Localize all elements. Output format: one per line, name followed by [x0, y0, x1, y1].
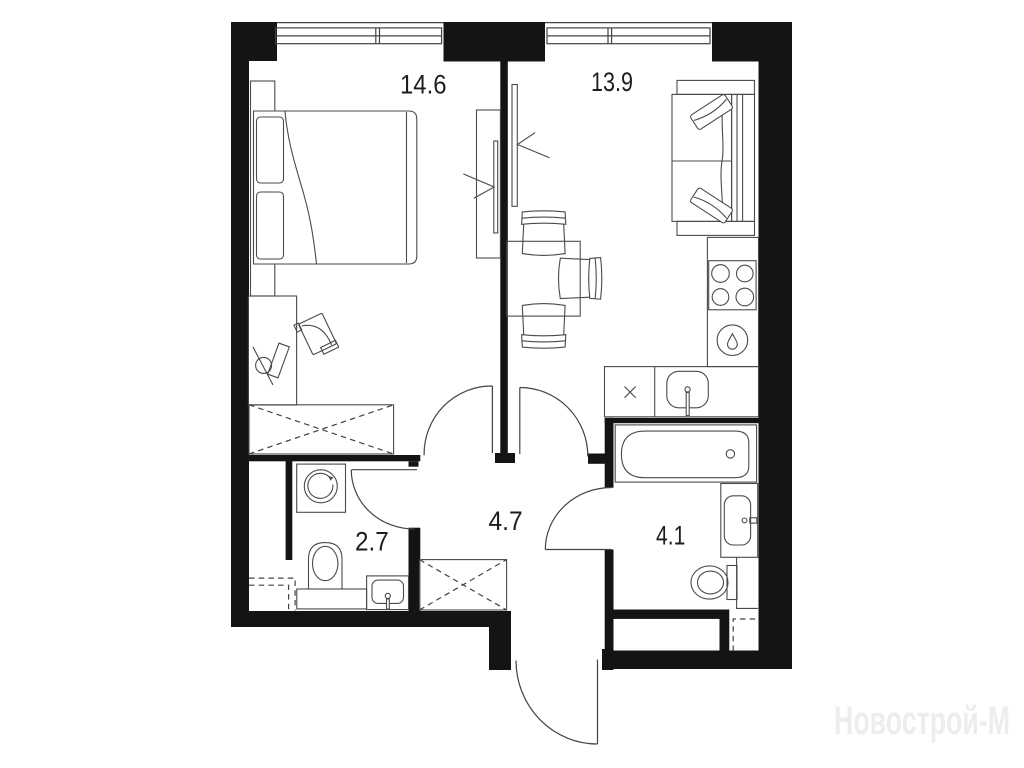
svg-text:13.9: 13.9 [591, 67, 633, 97]
svg-text:4.1: 4.1 [656, 521, 685, 551]
svg-text:Новострой-М: Новострой-М [834, 699, 1010, 743]
svg-text:2.7: 2.7 [355, 527, 389, 557]
svg-text:4.7: 4.7 [489, 506, 523, 536]
svg-text:14.6: 14.6 [400, 70, 447, 100]
